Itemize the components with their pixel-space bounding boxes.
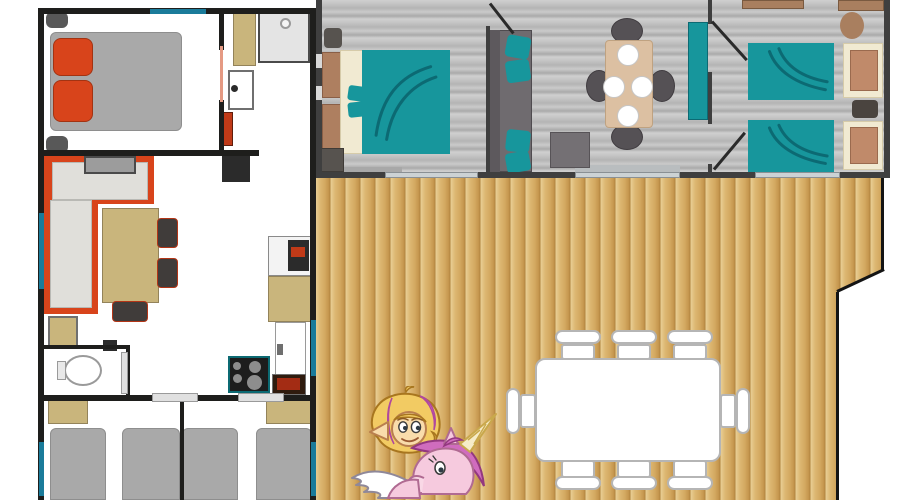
door-bottomroom-left bbox=[152, 393, 198, 402]
gu2-wardrobe bbox=[688, 22, 708, 120]
master-pillow-2 bbox=[53, 80, 93, 122]
patio-chair-t1-seat bbox=[561, 344, 595, 360]
patio-chair-right-back bbox=[736, 388, 750, 434]
gu-sofa-pillow-4 bbox=[504, 150, 531, 174]
window-right-bedroom bbox=[311, 442, 316, 496]
oven-label bbox=[277, 378, 300, 390]
side-cabinet bbox=[48, 316, 78, 347]
gu2-chair bbox=[840, 12, 864, 39]
patio-table bbox=[535, 358, 721, 462]
gu-window-left-1 bbox=[316, 54, 322, 68]
wall-mid-horizontal bbox=[38, 150, 259, 156]
deck-edge-right bbox=[881, 175, 884, 270]
gu-window-left-2 bbox=[316, 86, 322, 100]
shower-drain bbox=[280, 18, 291, 29]
gu-window-1 bbox=[385, 172, 478, 178]
water-heater bbox=[222, 156, 250, 182]
master-pillow-1 bbox=[53, 38, 93, 76]
patio-chair-left-seat bbox=[520, 394, 536, 428]
hob-burner-2 bbox=[247, 375, 262, 390]
wardrobe bbox=[233, 11, 256, 66]
desk-bottom-left bbox=[48, 400, 88, 424]
plate-left bbox=[603, 76, 625, 98]
window-left-living bbox=[39, 213, 44, 289]
hob-burner-4 bbox=[233, 374, 242, 383]
dining-table bbox=[102, 208, 159, 303]
gu-sofa-pillow-3 bbox=[505, 129, 531, 153]
gu-wall-right bbox=[884, 0, 890, 178]
sofa-cushion-left bbox=[50, 200, 92, 308]
dining-chair-2 bbox=[157, 258, 178, 288]
single-bed-4 bbox=[256, 428, 312, 500]
wall-master-right-lower bbox=[219, 100, 224, 156]
patio-chair-t3-back bbox=[667, 330, 713, 344]
gu2-bed2-cover bbox=[748, 120, 834, 173]
gu2-bed1-pillow bbox=[850, 50, 878, 91]
gu-sliding-door-step bbox=[575, 165, 680, 172]
gu2-bed1-cover bbox=[748, 43, 834, 100]
wall-wc-top bbox=[42, 345, 130, 349]
hob-burner-1 bbox=[249, 361, 261, 373]
gu-partition-2c bbox=[708, 164, 712, 178]
single-bed-3 bbox=[182, 428, 238, 500]
door-bottomroom-right bbox=[238, 393, 284, 402]
kitchen-faucet bbox=[277, 344, 283, 355]
door-wc-leaf bbox=[121, 352, 128, 394]
gu-coffee-table bbox=[550, 132, 590, 168]
wall-bottomrooms-mid bbox=[180, 398, 184, 500]
gu2-desk-corner bbox=[838, 0, 884, 11]
patio-chair-b3-back bbox=[667, 476, 713, 490]
patio-chair-t1-back bbox=[555, 330, 601, 344]
bathroom-faucet bbox=[231, 85, 238, 92]
patio-chair-t2-back bbox=[611, 330, 657, 344]
gu2-desk bbox=[742, 0, 804, 9]
gu-sofa-back bbox=[490, 30, 500, 172]
patio-chair-t2-seat bbox=[617, 344, 651, 360]
wall-master-right-upper bbox=[219, 8, 224, 50]
single-bed-1 bbox=[50, 428, 106, 500]
deck-edge-lower bbox=[836, 292, 839, 500]
plate-bottom bbox=[617, 105, 639, 127]
gu1-double-bed-cover bbox=[362, 50, 450, 154]
gu-window-3 bbox=[755, 172, 840, 178]
window-left-bedroom bbox=[39, 442, 44, 496]
gu-sofa-pillow-2 bbox=[505, 58, 532, 83]
patio-chair-t3-seat bbox=[673, 344, 707, 360]
single-bed-2 bbox=[122, 428, 180, 500]
fridge-panel-red bbox=[291, 247, 305, 257]
hob-burner-3 bbox=[233, 362, 241, 370]
patio-chair-b2-back bbox=[611, 476, 657, 490]
dining-chair-3 bbox=[112, 301, 148, 322]
gu1-nightstand-top bbox=[324, 28, 342, 48]
toilet-tank bbox=[57, 361, 66, 380]
dining-chair-1 bbox=[157, 218, 178, 248]
gu-sofa-pillow-1 bbox=[504, 34, 531, 60]
window-right-kitchen bbox=[311, 320, 316, 376]
kitchen-counter bbox=[268, 276, 313, 322]
unicorn-horn bbox=[460, 414, 496, 452]
sofa-console bbox=[84, 156, 136, 174]
floor-plan-canvas bbox=[0, 0, 900, 500]
gu-window-2 bbox=[575, 172, 680, 178]
patio-chair-right-seat bbox=[720, 394, 736, 428]
patio-chair-b1-back bbox=[555, 476, 601, 490]
door-master-leaf bbox=[220, 46, 223, 102]
toilet-bowl bbox=[64, 355, 102, 386]
gu-partition-1 bbox=[486, 26, 490, 172]
plate-right bbox=[631, 76, 653, 98]
gu2-nightstand bbox=[852, 100, 878, 118]
gu-partition-2b bbox=[708, 72, 712, 124]
window-top bbox=[150, 9, 206, 14]
patio-chair-left-back bbox=[506, 388, 520, 434]
plate-top bbox=[617, 44, 639, 66]
gu2-bed2-pillow bbox=[850, 127, 878, 164]
unicorn-fairy-mascot bbox=[348, 386, 508, 500]
stool-top bbox=[46, 12, 68, 28]
